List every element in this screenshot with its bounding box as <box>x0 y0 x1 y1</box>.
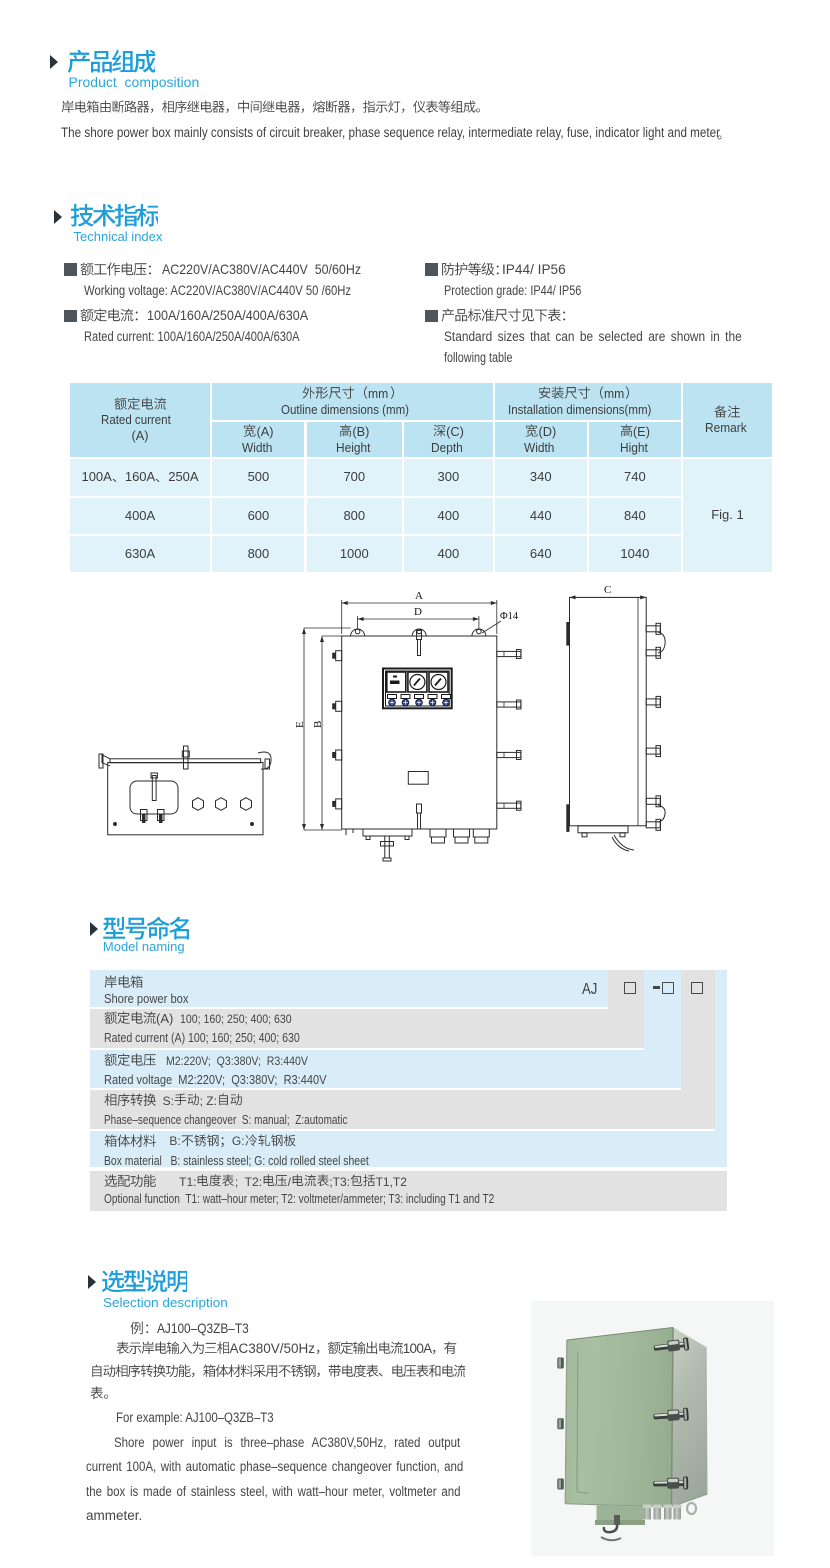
svg-text:E: E <box>294 721 306 728</box>
svg-text:Φ14: Φ14 <box>500 611 519 622</box>
svg-text:D: D <box>414 606 422 618</box>
svg-text:C: C <box>604 584 611 596</box>
svg-text:A: A <box>415 590 423 602</box>
svg-text:B: B <box>312 721 324 728</box>
